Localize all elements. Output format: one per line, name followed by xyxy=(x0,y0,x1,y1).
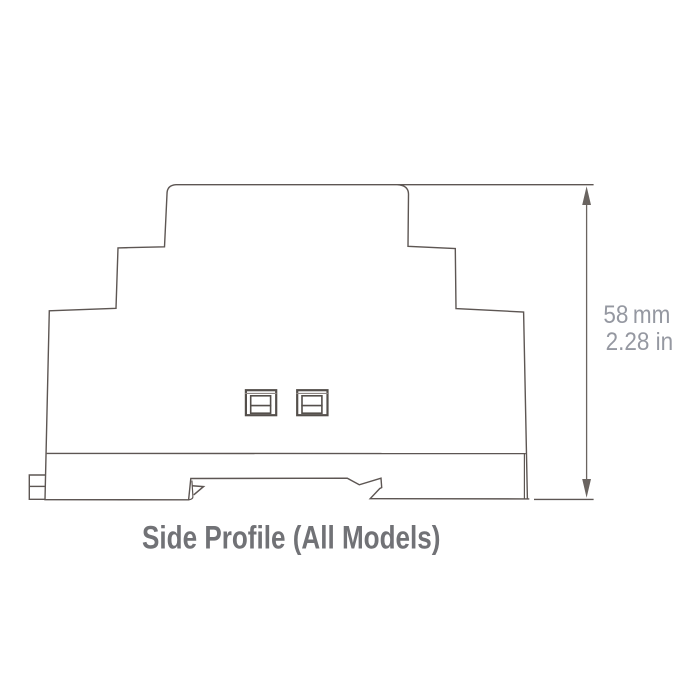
svg-text:58 mm: 58 mm xyxy=(603,301,670,329)
svg-text:Side Profile (All Models): Side Profile (All Models) xyxy=(142,521,440,556)
svg-text:2.28 in: 2.28 in xyxy=(606,328,674,356)
